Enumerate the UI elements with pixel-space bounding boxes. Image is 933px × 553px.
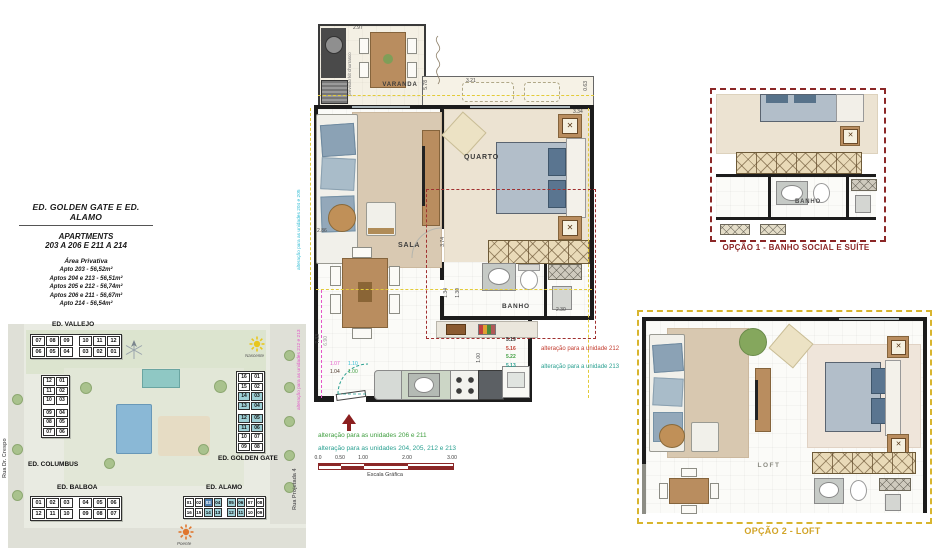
planter-box <box>524 82 560 102</box>
option2-wall-left-lower <box>642 464 646 514</box>
dimension-label: 1.00 <box>477 353 482 363</box>
option1-wardrobe <box>736 152 862 174</box>
window-sliding-door <box>352 106 410 108</box>
dimension-label: 1.00 <box>348 370 358 375</box>
dimension-label: 2.30 <box>556 308 566 313</box>
option2-dining-chair <box>710 483 719 499</box>
bed-pillow <box>548 148 566 176</box>
option2-nightstand-lamp-icon: ✕ <box>891 340 906 355</box>
dining-chair <box>330 266 341 286</box>
dimension-label: 5.13 <box>506 362 516 371</box>
scale-bar: 0.00.501.002.003.00 Escala Gráfica <box>318 455 458 479</box>
scale-tick: 3.00 <box>447 455 457 461</box>
option1-nightstand-lamp-icon: ✕ <box>843 129 858 144</box>
option2-loft-label: LOFT <box>739 462 799 469</box>
dimension-label: 6.90 <box>324 336 329 346</box>
option1-box: ✕ BANHO <box>710 88 886 242</box>
option2-wall-left <box>642 317 646 467</box>
annotation-204-205: alteração para as unidades 204 e 205 <box>297 148 302 270</box>
dining-chair <box>389 266 400 286</box>
option2-armchair <box>691 422 719 452</box>
annotation-204-205-212-213: alteração para as unidades 204, 205, 212… <box>318 445 456 452</box>
option1-change-zone <box>426 189 596 339</box>
dimension-label: 1.34 <box>444 288 449 298</box>
scale-bar-graphic <box>318 463 454 470</box>
dimension-label: 5.19 <box>506 336 516 345</box>
option2-box: ✕ ✕ LOFT <box>637 310 932 524</box>
dimension-label: 3.21 <box>466 79 476 84</box>
laundry-basin <box>507 372 525 388</box>
dimension-label: 7.33 <box>316 334 321 344</box>
varanda-label: VARANDA <box>372 82 428 88</box>
nightstand-lamp-icon: ✕ <box>562 118 578 134</box>
dimension-label: 3.34 <box>573 110 583 115</box>
sofa-cushion <box>320 157 356 191</box>
option1-label: OPÇÃO 1 - BANHO SOCIAL E SUÍTE <box>710 243 882 252</box>
option2-bed-headboard <box>885 360 901 436</box>
option2-dining-table <box>669 478 709 504</box>
dimension-label: 1.10 <box>348 362 358 367</box>
option2-label: OPÇÃO 2 - LOFT <box>637 526 928 536</box>
side-table <box>328 204 356 232</box>
bbq-grill-icon <box>325 36 343 54</box>
scale-tick: 0.0 <box>315 455 322 461</box>
option2-sofa-cushion <box>652 343 684 373</box>
dimension-label: 5.16 <box>506 345 516 354</box>
unit-212-213-change-line <box>321 290 322 398</box>
annotation-unit-212: alteração para a unidade 212 <box>541 346 619 352</box>
scale-bar-caption: Escala Gráfica <box>318 472 452 478</box>
option1-bed-pillow <box>794 95 816 103</box>
oven <box>478 370 504 400</box>
entrance-door-arc <box>336 362 370 396</box>
planter-box <box>462 82 514 102</box>
dimension-label: 1.07 <box>330 362 340 367</box>
dining-chair <box>330 294 341 314</box>
dining-runner <box>358 282 372 302</box>
signature-scribble <box>430 34 446 90</box>
dining-chair <box>389 294 400 314</box>
entrance-arrow-stem <box>347 424 351 431</box>
entrance-arrow-icon <box>342 414 356 424</box>
option2-nightstand-lamp-icon: ✕ <box>891 438 906 453</box>
option1-bed-sheet <box>836 94 864 122</box>
annotation-206-211: alteração para as unidades 206 e 211 <box>318 432 427 439</box>
option2-dining-chair <box>659 483 668 499</box>
dining-chair <box>352 247 372 258</box>
varanda-chair <box>359 38 369 54</box>
option1-bed-pillow <box>766 95 788 103</box>
kitchen-sink-basin <box>414 377 434 393</box>
varanda-chair <box>359 62 369 78</box>
varanda-chair <box>407 62 417 78</box>
loft-change-line <box>310 108 311 290</box>
window-sliding-door <box>470 106 570 108</box>
option1-wall-bottom <box>716 217 876 220</box>
stacked-dimensions: 5.195.165.225.13 <box>506 336 516 370</box>
scale-tick: 1.00 <box>358 455 368 461</box>
dining-chair <box>352 328 372 339</box>
option2-wall-right <box>923 317 927 513</box>
dimension-label: 5.78 <box>424 80 429 90</box>
option2-shower-tray <box>879 478 911 491</box>
option2-sink-icon <box>819 482 839 498</box>
dimension-label: 0.63 <box>584 81 589 91</box>
scale-tick: 2.00 <box>402 455 412 461</box>
tv-icon <box>422 146 425 206</box>
varanda-plant <box>383 54 393 64</box>
quarto-label: QUARTO <box>464 154 499 161</box>
option2-sofa-cushion <box>652 377 683 407</box>
option1-shower-fixture <box>855 195 871 213</box>
option2-tv-icon <box>755 380 758 420</box>
option2-dining-chair <box>681 468 697 477</box>
option1-banho-label: BANHO <box>778 199 838 205</box>
churrasco-note: previsão kit churrasco <box>347 34 352 96</box>
annotation-212-213: alteração para as unidades 212 e 213 <box>297 292 302 410</box>
bbq-counter <box>321 80 348 104</box>
option2-dining-chair <box>681 505 697 514</box>
dimension-label: 3.74 <box>441 237 446 247</box>
option1-wall-divider <box>768 177 771 217</box>
option2-side-table <box>659 424 685 448</box>
option2-shower-fixture <box>885 494 901 511</box>
annotation-unit-213: alteração para a unidade 213 <box>541 364 619 370</box>
option2-window <box>839 318 899 320</box>
option2-plant-icon <box>739 328 767 356</box>
armchair-base <box>368 228 394 234</box>
option1-vanity-counter <box>720 224 750 235</box>
varanda-chair <box>407 38 417 54</box>
scale-tick: 0.50 <box>335 455 345 461</box>
stove <box>450 370 480 400</box>
option2-wardrobe <box>812 452 916 474</box>
sofa-cushion <box>320 123 356 157</box>
dimension-label: 2.97 <box>353 26 363 31</box>
option2-toilet-icon <box>850 480 867 501</box>
option1-shower-tray <box>851 179 877 191</box>
dimension-label: 1.04 <box>330 370 340 375</box>
dimension-label: 5.22 <box>506 353 516 362</box>
floor-plan-sheet: ED. GOLDEN GATE E ED. ALAMO APARTMENTS 2… <box>0 0 933 553</box>
fridge <box>374 370 403 400</box>
option1-vanity-counter <box>760 224 786 235</box>
dimension-label: 2.86 <box>317 229 327 234</box>
loft-change-line <box>318 95 594 96</box>
option1-wall-shower <box>846 177 849 217</box>
dimension-label: 1.30 <box>456 288 461 298</box>
